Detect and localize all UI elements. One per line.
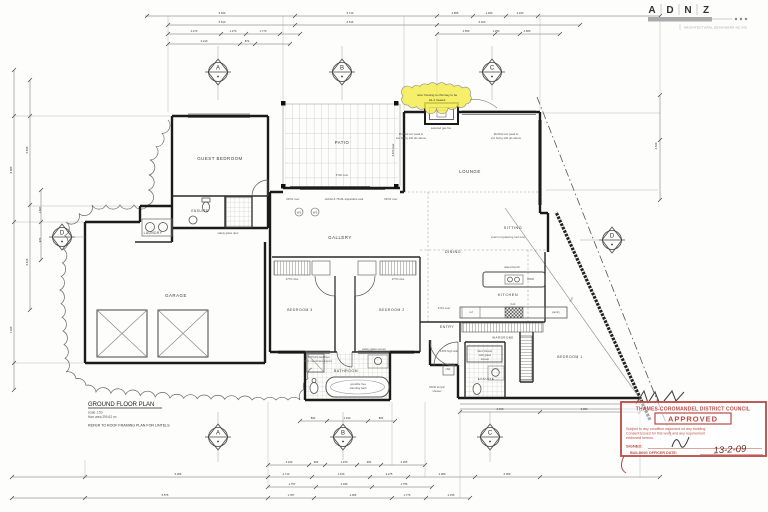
svg-text:6.059: 6.059 [504, 472, 511, 476]
svg-text:5.510: 5.510 [219, 20, 226, 24]
svg-text:9713 over: 9713 over [438, 306, 451, 310]
grid-marker-letter: C [490, 66, 495, 72]
grid-marker-letter: D [610, 234, 615, 240]
svg-text:1.970: 1.970 [341, 460, 348, 464]
svg-text:6.425: 6.425 [25, 258, 29, 265]
room-label-laundry: LAUNDRY [144, 231, 163, 235]
note-leader-line [470, 99, 497, 108]
guest-ensuite-tiles [226, 197, 252, 227]
room-label-lounge: LOUNGE [459, 169, 481, 174]
grid-marker-letter: C [488, 431, 493, 437]
grid-marker-b-top: B [329, 59, 355, 85]
svg-text:1400 high wall: 1400 high wall [440, 349, 458, 353]
svg-text:Hobbs & 7616L adjustable seal: Hobbs & 7616L adjustable seal [325, 197, 364, 201]
grid-marker-letter: A [216, 431, 220, 437]
room-label-bedroom2: BEDROOM 2 [379, 308, 405, 312]
plan-area: floor area 290.62 m² [88, 415, 117, 419]
window-tag-label: W2 [297, 211, 302, 215]
svg-text:1.607: 1.607 [38, 206, 42, 213]
svg-text:screen: screen [481, 357, 490, 361]
svg-text:2.855: 2.855 [452, 11, 459, 15]
lintel-note: REFER TO ROOF FRAMING PLAN FOR LINTELS [88, 424, 170, 428]
site-boundary [505, 97, 672, 438]
svg-text:960: 960 [367, 460, 372, 464]
svg-text:6.516: 6.516 [347, 20, 354, 24]
svg-text:6702 over: 6702 over [336, 173, 349, 177]
svg-text:970: 970 [38, 237, 42, 242]
svg-text:1.250: 1.250 [486, 11, 493, 15]
bedroom3-shelf [312, 261, 330, 275]
svg-text:2.470: 2.470 [191, 29, 198, 33]
svg-text:5.940: 5.940 [219, 11, 226, 15]
svg-text:floor membrane (wpm): floor membrane (wpm) [304, 359, 332, 363]
svg-text:HW: HW [446, 367, 451, 371]
svg-text:4.873 over: 4.873 over [391, 144, 395, 157]
svg-text:ref: ref [469, 310, 472, 314]
grid-marker-d-left: D [49, 224, 75, 250]
svg-text:selected gas fire: selected gas fire [431, 126, 452, 130]
svg-text:1.919: 1.919 [338, 472, 345, 476]
porch-arc [430, 340, 456, 366]
note-line2: H1.2 treated [429, 98, 446, 102]
svg-text:2.400: 2.400 [517, 11, 524, 15]
svg-text:safety glass screen: safety glass screen [362, 347, 386, 351]
svg-text:RF01 over: RF01 over [286, 197, 299, 201]
room-label-bathroom: BATHROOM [334, 369, 358, 373]
logo-letter: A [648, 5, 655, 16]
svg-text:6.320: 6.320 [479, 20, 486, 24]
grid-marker-b-bottom: B [330, 424, 356, 450]
logo-dots [735, 18, 747, 20]
stamp-date-handwritten: 13-2-09 [713, 444, 747, 457]
room-label-sitting: SITTING [504, 226, 522, 230]
svg-text:870: 870 [245, 39, 250, 43]
svg-text:1.770: 1.770 [260, 29, 267, 33]
svg-text:shower: shower [432, 389, 441, 393]
svg-text:safety glass door: safety glass door [217, 231, 238, 235]
floor-plan-canvas: W2 W3 GUEST BEDROOM ENSUITE LAUNDRY GARA… [0, 0, 768, 512]
svg-text:RF01 over: RF01 over [384, 197, 397, 201]
stamp-body2: Consent issued for this work and any req… [626, 432, 705, 436]
svg-text:3.090: 3.090 [581, 407, 588, 411]
svg-text:2.156: 2.156 [448, 493, 455, 497]
svg-text:2.580: 2.580 [524, 29, 531, 33]
room-label-guest-ensuite: ENSUITE [191, 209, 208, 213]
logo-letter: N [684, 5, 691, 16]
svg-text:5.845: 5.845 [25, 146, 29, 153]
room-label-main-ensuite: ENSUITE [478, 377, 495, 381]
svg-text:island bench: island bench [504, 265, 520, 269]
logo-subtitle: ARCHITECTURAL DESIGNERS NZ INC [684, 26, 748, 30]
room-label-kitchen: KITCHEN [498, 293, 518, 297]
approval-stamp: THAMES-COROMANDEL DISTRICT COUNCIL APPRO… [621, 391, 766, 473]
svg-text:1.756: 1.756 [401, 482, 408, 486]
garage-panel-2 [158, 310, 208, 357]
grid-marker-c-top: C [479, 59, 505, 85]
svg-text:2.400: 2.400 [497, 407, 504, 411]
svg-text:s/w being 140 pfc above: s/w being 140 pfc above [396, 136, 427, 140]
svg-text:1.757: 1.757 [289, 482, 296, 486]
bedroom3-wardrobe [274, 261, 310, 275]
svg-text:standing bath: standing bath [350, 386, 367, 390]
room-label-wardrobe: WARDROBE [492, 336, 514, 340]
svg-text:6.710: 6.710 [347, 11, 354, 15]
grid-marker-letter: D [60, 231, 65, 237]
svg-text:5.575: 5.575 [162, 493, 169, 497]
room-label-bedroom3: BEDROOM 3 [287, 308, 313, 312]
note-line1: note: framing to chimney to be [417, 93, 458, 97]
svg-text:7.165: 7.165 [9, 326, 13, 333]
bedroom2-wardrobe [380, 261, 416, 275]
plan-scale: scale 1:50 [88, 411, 103, 415]
svg-text:2770 robe: 2770 robe [286, 277, 299, 281]
svg-text:3.230: 3.230 [286, 460, 293, 464]
stamp-officer-label: BUILDING OFFICER DATE: [630, 451, 677, 455]
wardrobe-vertical-hatch [520, 336, 532, 380]
svg-text:6.066: 6.066 [175, 472, 182, 476]
logo-letter: Z [703, 5, 709, 16]
bedroom2-shelf [358, 261, 376, 275]
stamp-council: THAMES-COROMANDEL DISTRICT COUNCIL [636, 407, 750, 413]
svg-text:2.550: 2.550 [463, 29, 470, 33]
svg-text:4.006: 4.006 [350, 493, 357, 497]
svg-text:960: 960 [314, 460, 319, 464]
logo-bar [648, 17, 712, 22]
svg-text:860: 860 [311, 416, 316, 420]
svg-text:2770 robe: 2770 robe [392, 277, 405, 281]
revision-clouds [60, 120, 312, 400]
stamp-signed-label: SIGNED: [626, 444, 643, 449]
grid-marker-letter: B [341, 431, 345, 437]
room-label-dining: DINING [445, 250, 461, 254]
grid-marker-c-bottom: C [477, 424, 503, 450]
title-block: GROUND FLOOR PLAN scale 1:50 floor area … [88, 402, 170, 428]
svg-text:4.540: 4.540 [654, 142, 658, 149]
svg-text:2.980: 2.980 [439, 472, 446, 476]
room-label-bedroom1: BEDROOM 1 [557, 355, 583, 359]
window-tag-label: W3 [313, 211, 318, 215]
boundary-dash-dot-line [537, 97, 672, 438]
svg-text:2.205: 2.205 [401, 460, 408, 464]
grid-marker-a-bottom: A [205, 424, 231, 450]
stamp-body3: endorsed hereon. [626, 436, 654, 440]
grid-marker-letter: A [216, 66, 220, 72]
stamp-approved: APPROVED [668, 415, 718, 424]
stamp-stray-mark [621, 456, 626, 473]
plan-title: GROUND FLOOR PLAN [88, 402, 154, 408]
grid-marker-a-top: A [205, 59, 231, 85]
hall-wardrobe-hatch [462, 323, 543, 332]
svg-text:1.910: 1.910 [344, 416, 351, 420]
svg-text:1.250: 1.250 [493, 29, 500, 33]
svg-text:4.039: 4.039 [341, 482, 348, 486]
svg-text:s/w being 140 pfc above: s/w being 140 pfc above [491, 136, 522, 140]
room-label-entry: ENTRY [440, 325, 454, 329]
svg-text:roof: roof [568, 296, 574, 302]
svg-text:pantry: pantry [552, 310, 560, 314]
adnz-logo: A D N Z ARCHITECTURAL DESIGNERS NZ INC [648, 4, 748, 30]
stamp-body1: Subject to any condition endorsed on any… [626, 427, 705, 431]
svg-text:hob: hob [511, 302, 516, 306]
logo-letter: D [666, 5, 673, 16]
svg-text:8.685: 8.685 [9, 166, 13, 173]
svg-text:860: 860 [379, 416, 384, 420]
room-label-patio: PATIO [335, 140, 350, 145]
svg-text:extent of guttering roof over: extent of guttering roof over [491, 235, 525, 239]
highlighted-note: note: framing to chimney to be H1.2 trea… [401, 83, 497, 114]
svg-text:1.787: 1.787 [288, 493, 295, 497]
room-label-garage: GARAGE [165, 293, 187, 298]
entry-door-swing [434, 342, 458, 366]
svg-text:3.210: 3.210 [201, 39, 208, 43]
grid-marker-letter: B [340, 66, 344, 72]
scanned-floor-plan-page: W2 W3 GUEST BEDROOM ENSUITE LAUNDRY GARA… [0, 0, 768, 512]
svg-text:1.270: 1.270 [230, 29, 237, 33]
svg-text:1.776: 1.776 [404, 493, 411, 497]
hob-checker [505, 307, 523, 318]
room-label-gallery: GALLERY [328, 235, 352, 240]
room-label-guest-bedroom: GUEST BEDROOM [197, 156, 242, 161]
svg-text:2.710: 2.710 [283, 472, 290, 476]
garage-panel-1 [97, 310, 147, 357]
grid-marker-d-right: D [599, 227, 625, 253]
revision-cloud [60, 120, 312, 400]
svg-text:3.275: 3.275 [386, 472, 393, 476]
